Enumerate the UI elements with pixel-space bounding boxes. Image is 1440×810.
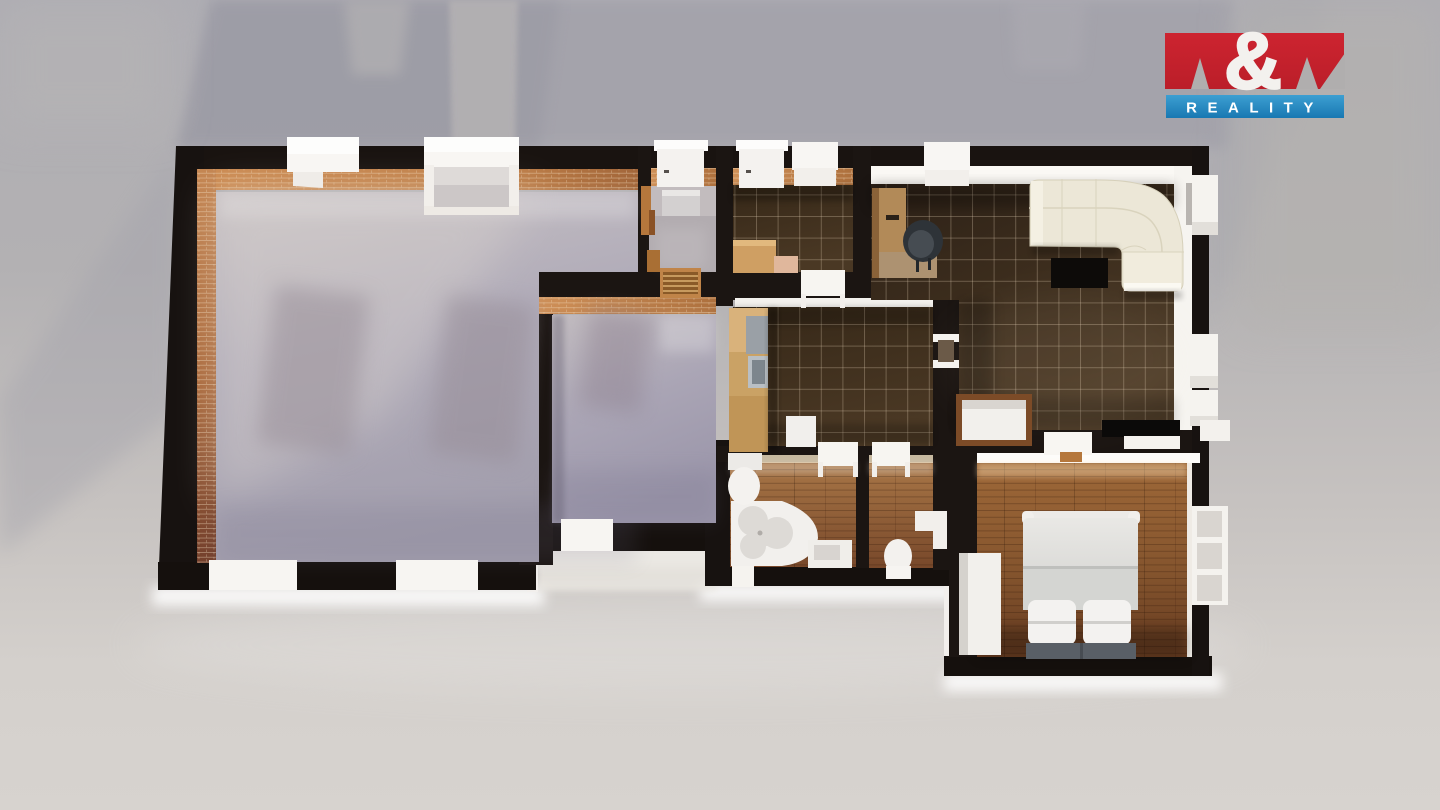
- svg-text:&: &: [1224, 16, 1282, 105]
- svg-text:REALITY: REALITY: [1186, 100, 1324, 117]
